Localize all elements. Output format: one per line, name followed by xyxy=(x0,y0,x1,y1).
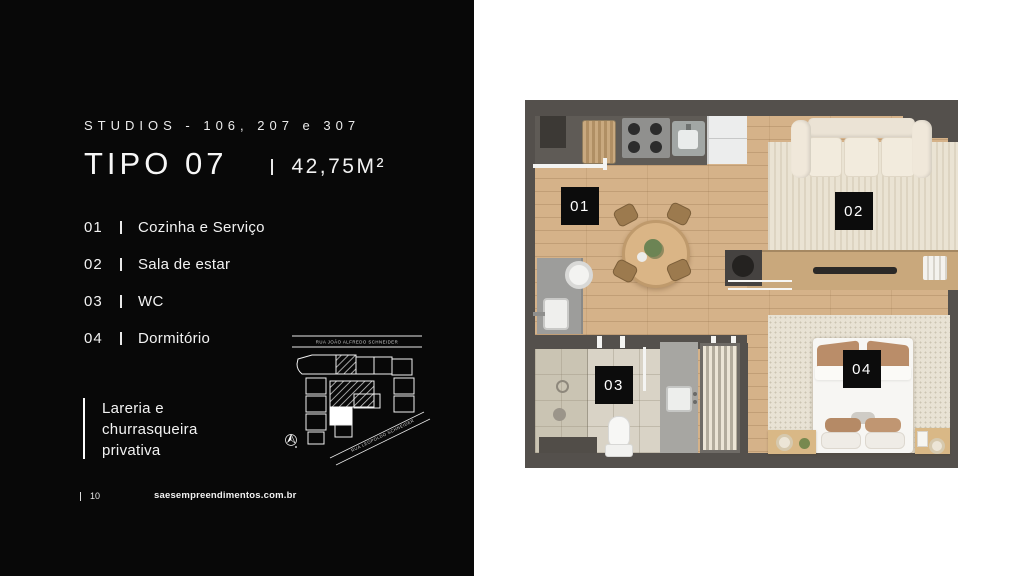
bathroom-door xyxy=(643,347,646,391)
faucet-icon xyxy=(693,400,697,404)
page-number-bar xyxy=(80,492,81,501)
website-url: saesempreendimentos.com.br xyxy=(154,490,296,501)
wall-top xyxy=(525,100,958,116)
kitchen-sink xyxy=(672,121,705,156)
burner-icon xyxy=(628,141,640,153)
list-item: 01 Cozinha e Serviço xyxy=(84,219,265,235)
room-label-04: 04 xyxy=(843,350,881,388)
sofa-back xyxy=(808,118,915,138)
shower-head xyxy=(553,408,566,421)
room-number: 04 xyxy=(84,330,110,347)
wall-divider xyxy=(740,343,748,453)
street-diagonal-label: RUA LEOPOLDO SCHNEIDER xyxy=(350,418,415,453)
faucet-icon xyxy=(533,312,545,316)
compass-icon xyxy=(286,434,297,448)
room-label-01: 01 xyxy=(561,187,599,225)
sofa-cushion xyxy=(881,137,915,177)
info-panel: STUDIOS - 106, 207 e 307 TIPO 07 42,75M²… xyxy=(0,0,474,576)
page-number: 10 xyxy=(80,491,100,501)
fridge-door-line xyxy=(709,138,747,139)
type-title: TIPO 07 xyxy=(84,146,227,182)
callout-line: churrasqueira xyxy=(102,419,198,440)
utility-sink xyxy=(666,386,692,412)
site-map: RUA JOÃO ALFREDO SCHNEIDER RUA LEOPOLDO … xyxy=(278,326,436,468)
laundry-sink xyxy=(543,298,569,330)
room-name: WC xyxy=(138,293,164,310)
lamp-icon xyxy=(776,434,793,451)
toilet-tank xyxy=(605,444,633,457)
units-eyebrow: STUDIOS - 106, 207 e 307 xyxy=(84,118,360,133)
room-legend: 01 Cozinha e Serviço 02 Sala de estar 03… xyxy=(84,219,265,367)
burner-icon xyxy=(628,123,640,135)
room-name: Cozinha e Serviço xyxy=(138,219,265,236)
sofa-cushion xyxy=(844,137,878,177)
sofa-arm xyxy=(791,120,811,178)
room-divider-bar xyxy=(120,295,122,308)
plant-icon xyxy=(799,438,810,449)
room-number: 03 xyxy=(84,293,110,310)
table-vase xyxy=(637,252,647,262)
fridge xyxy=(707,114,747,164)
faucet-icon xyxy=(693,392,697,396)
faucet-icon xyxy=(686,124,691,130)
soundbar xyxy=(813,267,897,274)
door-frame xyxy=(597,336,602,348)
bed-cushion xyxy=(865,418,901,432)
burner-icon xyxy=(650,123,662,135)
street-top: RUA JOÃO ALFREDO SCHNEIDER xyxy=(292,336,422,347)
room-number: 01 xyxy=(84,219,110,236)
title-row: TIPO 07 42,75M² xyxy=(84,146,386,182)
callout-line: privativa xyxy=(102,440,198,461)
room-name: Sala de estar xyxy=(138,256,230,273)
shower-bench xyxy=(539,437,597,453)
room-divider-bar xyxy=(120,332,122,345)
washer-top xyxy=(565,261,593,289)
feature-callout: Lareria e churrasqueira privativa xyxy=(83,398,198,461)
shower-drain xyxy=(556,380,569,393)
entry-door-frame xyxy=(603,158,607,170)
lamp-icon xyxy=(929,438,945,454)
room-label-02: 02 xyxy=(835,192,873,230)
page-number-value: 10 xyxy=(90,491,100,501)
list-item: 04 Dormitório xyxy=(84,330,265,346)
bed-cushion xyxy=(825,418,861,432)
sofa-cushion xyxy=(808,137,842,177)
area-value: 42,75M² xyxy=(291,155,386,179)
street-top-label: RUA JOÃO ALFREDO SCHNEIDER xyxy=(316,339,398,344)
sofa-arm xyxy=(912,120,932,178)
callout-accent-bar xyxy=(83,398,85,459)
sink-basin xyxy=(678,130,698,149)
room-name: Dormitório xyxy=(138,330,210,347)
room-label-03: 03 xyxy=(595,366,633,404)
sofa xyxy=(808,137,915,177)
fireplace-burner xyxy=(732,255,754,277)
room-divider-bar xyxy=(120,258,122,271)
wall-left xyxy=(525,100,535,468)
floor-plan: 01 02 03 04 xyxy=(525,100,958,468)
list-item: 02 Sala de estar xyxy=(84,256,265,272)
burner-icon xyxy=(650,141,662,153)
kitchen-shaft xyxy=(540,116,566,148)
books xyxy=(923,256,947,280)
entry-door xyxy=(533,164,605,168)
callout-text: Lareria e churrasqueira privativa xyxy=(102,398,198,461)
door-frame xyxy=(620,336,625,348)
wall-bottom xyxy=(525,453,958,468)
wicker-basket xyxy=(582,120,616,164)
barbecue-deck xyxy=(700,343,740,453)
decor-frame xyxy=(917,431,928,447)
title-divider-bar xyxy=(271,159,273,175)
bed-cushion xyxy=(821,432,861,449)
cooktop xyxy=(622,118,670,158)
glass-rail xyxy=(728,280,792,290)
room-number: 02 xyxy=(84,256,110,273)
room-divider-bar xyxy=(120,221,122,234)
callout-line: Lareria e xyxy=(102,398,198,419)
bed-cushion xyxy=(865,432,905,449)
list-item: 03 WC xyxy=(84,293,265,309)
